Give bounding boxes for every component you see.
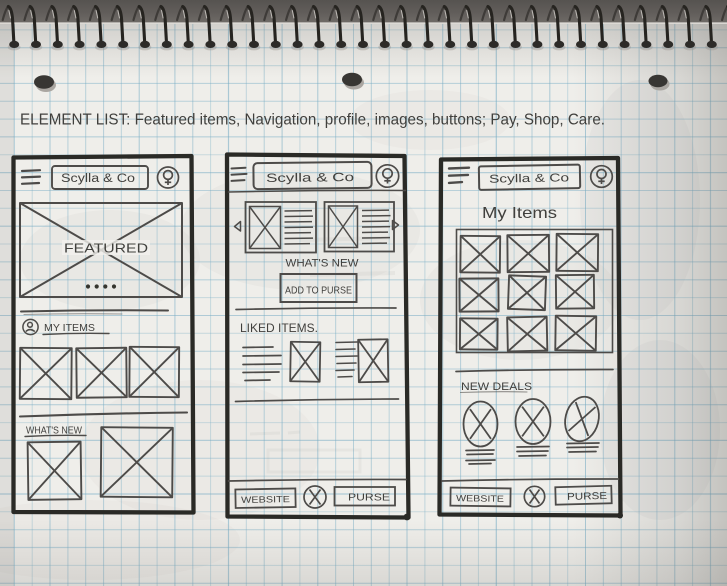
svg-text:My Items: My Items [482, 205, 557, 222]
svg-text:PURSE: PURSE [348, 493, 390, 504]
svg-text:FEATURED: FEATURED [64, 242, 148, 256]
svg-text:PURSE: PURSE [567, 491, 608, 503]
svg-text:Scylla & Co: Scylla & Co [61, 173, 135, 185]
svg-text:WEBSITE: WEBSITE [241, 494, 290, 505]
svg-text:Scylla & Co: Scylla & Co [266, 170, 355, 185]
svg-text:ELEMENT LIST: Featured items,: ELEMENT LIST: Featured items, Navigation… [20, 112, 605, 129]
svg-text:Scylla & Co: Scylla & Co [489, 172, 569, 185]
svg-text:LIKED ITEMS.: LIKED ITEMS. [240, 323, 318, 335]
svg-text:WHAT'S NEW: WHAT'S NEW [286, 258, 360, 270]
svg-text:MY ITEMS: MY ITEMS [44, 323, 95, 334]
svg-text:ADD TO PURSE: ADD TO PURSE [285, 285, 352, 297]
svg-text:WEBSITE: WEBSITE [456, 493, 504, 504]
